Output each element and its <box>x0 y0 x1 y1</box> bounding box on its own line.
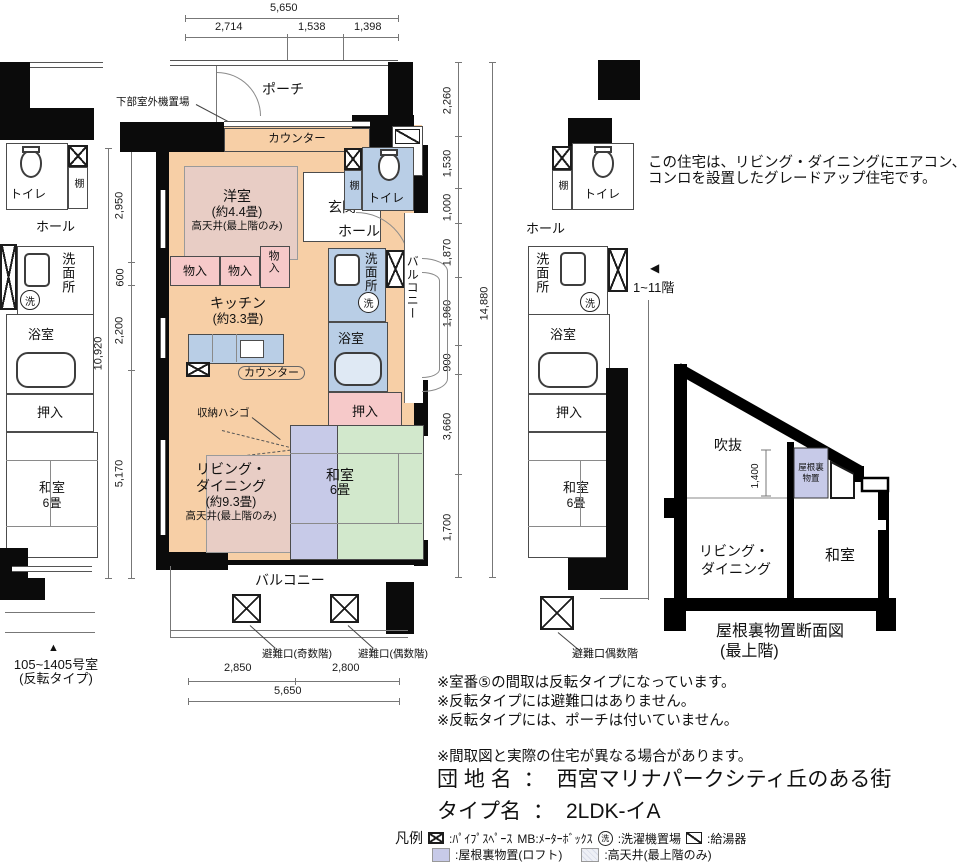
legend-washer-label: :洗濯機置場 <box>618 830 681 847</box>
type-name-value: 2LDK-イA <box>566 800 661 823</box>
central-washroom-label: 洗面所 <box>362 252 376 293</box>
central-washer-mark: 洗 <box>358 292 379 313</box>
central-pipe-space <box>344 148 362 170</box>
floors-label: 1~11階 <box>633 281 674 295</box>
right-washroom-label: 洗面所 <box>534 252 548 294</box>
porch-door-arc <box>217 72 261 116</box>
estate-name-colon: ： <box>524 768 545 791</box>
note-3: ※反転タイプには、ポーチは付いていません。 <box>437 714 738 730</box>
dim-left-seg1: 2,950 <box>114 190 125 222</box>
right-washer-mark: 洗 <box>580 292 600 312</box>
section-void-label: 吹抜 <box>714 437 742 453</box>
floors-arrow: ◀ <box>650 262 659 275</box>
right-toilet-fixture <box>592 150 614 178</box>
left-pipe-space <box>68 145 88 167</box>
washer-place-icon: 洗 <box>598 831 613 846</box>
dim-left-total: 10,920 <box>93 335 104 373</box>
section-living-label-1: リビング・ <box>699 543 769 559</box>
left-unit-arrow: ▲ <box>48 642 59 654</box>
right-bath-label: 浴室 <box>550 328 576 342</box>
dim-top-seg3: 1,398 <box>352 22 384 33</box>
dim-left-seg3: 2,200 <box>114 315 125 347</box>
left-washitsu: 和室6畳 <box>6 432 98 558</box>
bottom-balcony-label: バルコニー <box>255 573 325 588</box>
pipe-space-icon <box>428 832 444 844</box>
note-1: ※室番⑤の間取は反転タイプになっています。 <box>437 676 735 692</box>
central-pipe-space-2 <box>386 250 405 288</box>
dim-bottom-total: 5,650 <box>272 686 304 697</box>
legend-title: 凡例 <box>395 828 423 848</box>
right-escape-hatch-label: 避難口偶数階 <box>572 648 638 660</box>
legend-loft-label: :屋根裏物置(ロフト) <box>455 846 562 863</box>
kitchen-counter-label: カウンター <box>238 366 305 380</box>
loft-color-icon <box>432 848 450 862</box>
description-text: この住宅は、リビング・ダイニングにエアコン、 コンロを設置したグレードアップ住宅… <box>648 156 966 188</box>
left-shelf-label: 棚 <box>72 178 83 189</box>
closet-3-label: 物入 <box>267 250 279 274</box>
note-2: ※反転タイプには避難口はありません。 <box>437 695 695 711</box>
ladder-label: 収納ハシゴ <box>197 408 250 420</box>
central-bath-label: 浴室 <box>338 332 364 346</box>
estate-name-row: 団 地 名 ： 西宮マリナパークシティ丘のある街 <box>437 768 891 791</box>
dim-bottom-seg1: 2,850 <box>222 663 254 674</box>
section-height-dim: 1,400 <box>750 463 761 488</box>
type-name-row: タイプ名 ： 2LDK-イA <box>437 800 661 823</box>
right-shelf-label: 棚 <box>556 180 567 191</box>
estate-name-label: 団 地 名 <box>437 768 512 791</box>
high-ceiling-icon <box>581 848 599 862</box>
legend-row-1: 凡例 :ﾊﾟｲﾌﾟｽﾍﾟｰｽ MB:ﾒｰﾀｰﾎﾞｯｸｽ 洗:洗濯機置場 :給湯器 <box>395 828 746 848</box>
section-washitsu-label: 和室 <box>825 547 855 564</box>
left-oshiire: 押入 <box>6 394 94 432</box>
left-bath-label: 浴室 <box>28 328 54 342</box>
dim-left-seg4: 5,170 <box>114 458 125 490</box>
dim-bottom-seg2: 2,800 <box>330 663 362 674</box>
legend-row-2: :屋根裏物置(ロフト) :高天井(最上階のみ) <box>432 846 712 863</box>
dim-right-total: 14,880 <box>479 285 490 323</box>
kitchen: キッチン (約3.3畳) <box>180 290 296 332</box>
central-washitsu-label: 和室6畳 <box>310 468 370 498</box>
right-pipe-space <box>552 146 572 170</box>
escape-hatch-odd <box>232 594 261 623</box>
kitchen-sink <box>240 340 264 358</box>
escape-hatch-odd-label: 避難口(奇数階) <box>262 649 332 661</box>
section-caption-1: 屋根裏物置断面図 <box>716 621 844 640</box>
dim-right-seg8: 1,700 <box>442 512 453 544</box>
section-caption-2: (最上階) <box>720 642 779 660</box>
attic-storage-section-diagram: 吹抜 1,400 屋根裏 物置 リビング・ ダイニング 和室 屋根裏物置断面図 … <box>658 358 970 662</box>
estate-name-value: 西宮マリナパークシティ丘のある街 <box>557 768 892 791</box>
legend-ceiling-label: :高天井(最上階のみ) <box>604 846 711 863</box>
closet-1: 物入 <box>170 256 220 286</box>
balcony-curve-inner <box>422 272 440 378</box>
central-toilet-fixture <box>378 153 400 181</box>
central-toilet-label: トイレ <box>368 192 404 205</box>
type-name-colon: ： <box>533 800 554 823</box>
left-toilet-fixture <box>20 150 42 178</box>
left-washroom-label: 洗面所 <box>60 252 74 294</box>
left-washer-mark: 洗 <box>20 290 40 310</box>
dim-left-seg2: 600 <box>116 266 127 288</box>
closet-2: 物入 <box>220 256 260 286</box>
right-toilet-label: トイレ <box>584 188 620 201</box>
dim-right-seg1: 2,260 <box>442 85 453 117</box>
kitchen-pipe-space <box>186 362 210 377</box>
type-name-label: タイプ名 <box>437 800 521 823</box>
legend-pipe-label: :ﾊﾟｲﾌﾟｽﾍﾟｰｽ <box>449 830 512 847</box>
floor-plan-sheet: 5,650 2,714 1,538 1,398 10,920 2,950 600… <box>0 0 975 865</box>
dim-top-seg1: 2,714 <box>213 22 245 33</box>
living-dining: リビング・ ダイニング (約9.3畳) 高天井(最上階のみ) <box>172 438 290 546</box>
right-hall-label: ホール <box>526 222 565 236</box>
right-escape-hatch <box>540 596 574 630</box>
left-unit-number: 105~1405号室(反転タイプ) <box>0 658 112 687</box>
water-heater-symbol <box>395 129 420 144</box>
central-shelf-label: 棚 <box>347 180 358 191</box>
outdoor-unit-label: 下部室外機置場 <box>116 97 190 109</box>
dim-right-seg7: 3,660 <box>442 411 453 443</box>
right-balcony-label: バルコニー <box>405 255 418 320</box>
left-hall-label: ホール <box>36 220 75 234</box>
right-pipe-space-2 <box>608 248 628 292</box>
legend-heater-label: :給湯器 <box>707 830 746 847</box>
dim-right-seg3: 1,000 <box>442 192 453 224</box>
section-loft-label-1: 屋根裏 <box>798 462 824 472</box>
dim-top-seg2: 1,538 <box>296 22 328 33</box>
legend-mb-label: MB:ﾒｰﾀｰﾎﾞｯｸｽ <box>517 830 592 847</box>
section-living-label-2: ダイニング <box>701 561 771 577</box>
escape-hatch-even-label: 避難口(偶数階) <box>358 649 428 661</box>
left-toilet-label: トイレ <box>10 188 46 201</box>
section-loft-label-2: 物置 <box>802 473 820 483</box>
porch-label: ポーチ <box>262 82 304 97</box>
escape-hatch-even <box>330 594 359 623</box>
note-4: ※間取図と実際の住宅が異なる場合があります。 <box>437 750 752 766</box>
water-heater-icon <box>686 832 702 844</box>
right-oshiire: 押入 <box>528 394 610 432</box>
dim-right-seg2: 1,530 <box>442 148 453 180</box>
dim-top-total: 5,650 <box>268 3 300 14</box>
left-pipe-space-2 <box>0 244 17 310</box>
